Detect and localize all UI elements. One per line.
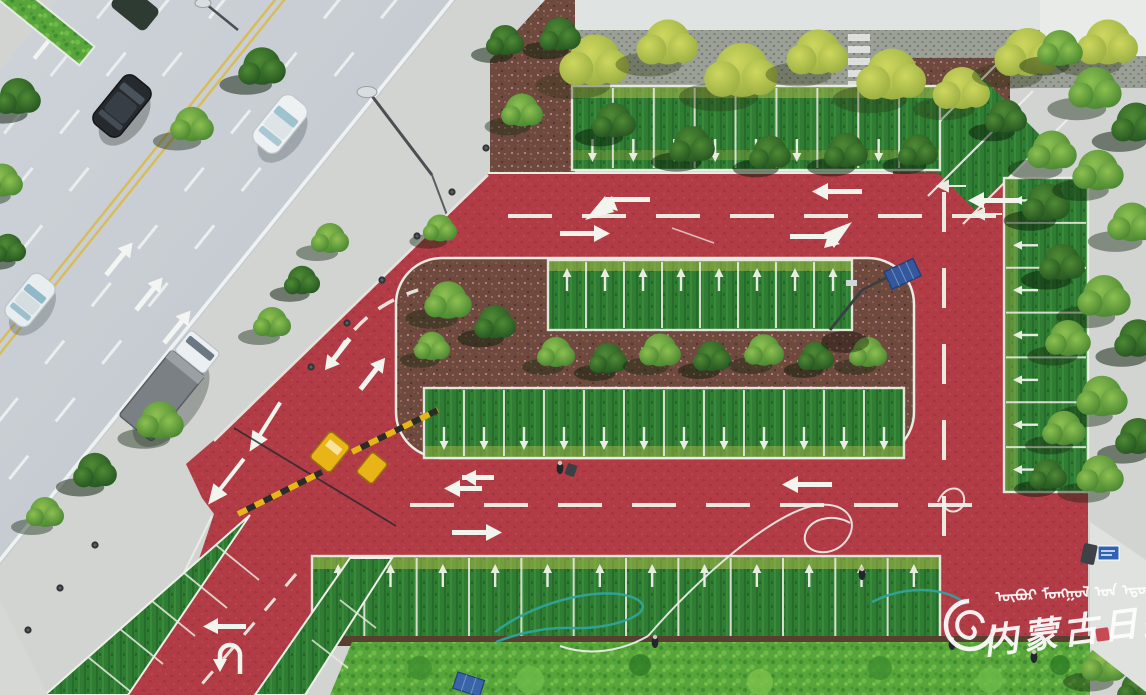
red-seal-icon: [1095, 627, 1110, 642]
bottom-parking-row: [312, 556, 940, 640]
aerial-photo-parking-lot: ᠦᠪᠦᠷ ᠮᠣᠩᠭᠣᠯ ᠤᠨ ᠡᠳᠦᠷ ᠦᠨ ᠰᠣᠨᠢᠨ 内蒙古日报: [0, 0, 1146, 695]
central-island: [396, 258, 921, 458]
